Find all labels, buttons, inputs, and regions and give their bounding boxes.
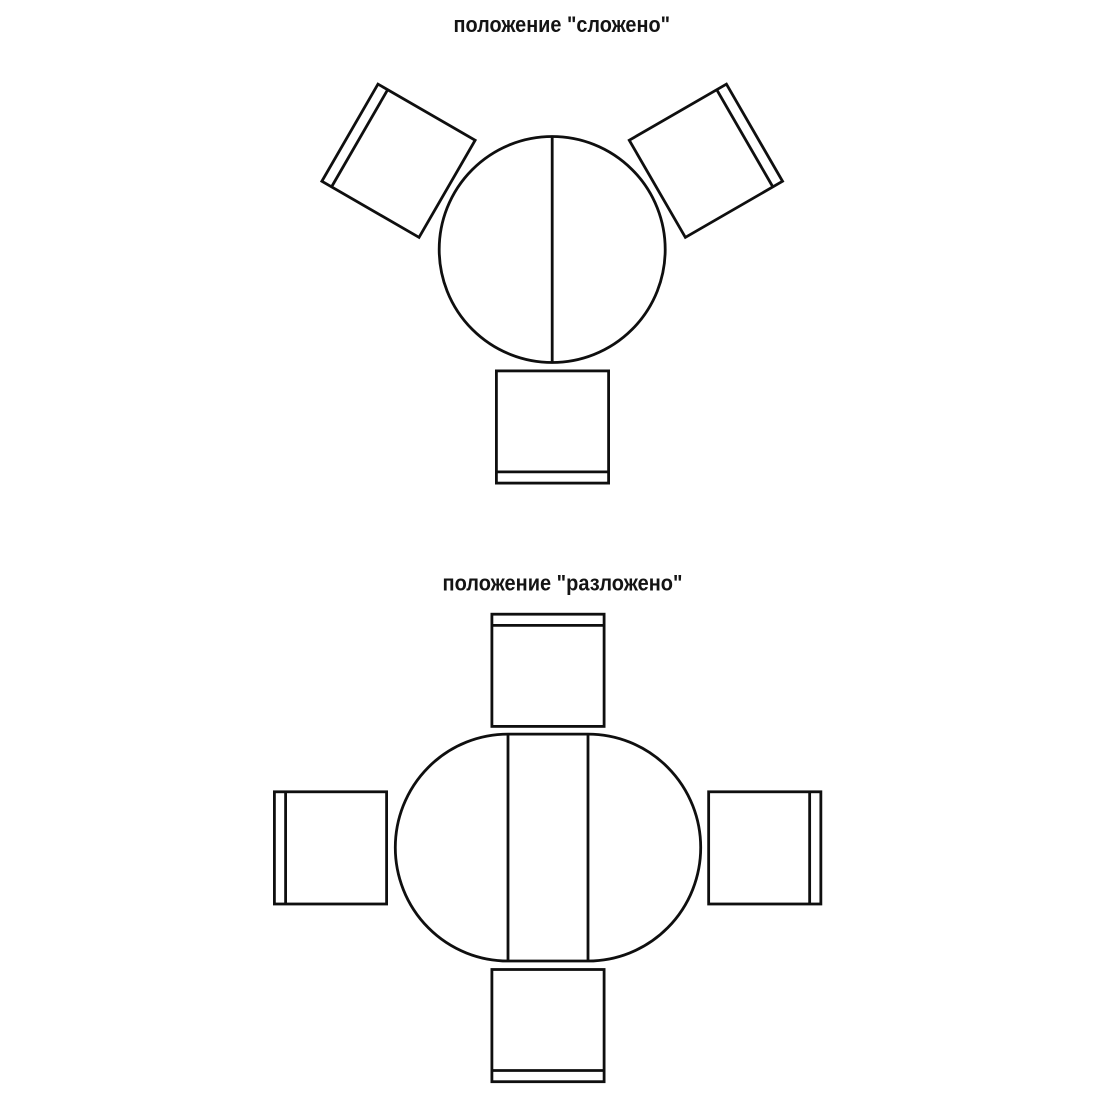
- svg-text:положение "разложено": положение "разложено": [443, 571, 683, 596]
- svg-text:положение "сложено": положение "сложено": [454, 12, 671, 37]
